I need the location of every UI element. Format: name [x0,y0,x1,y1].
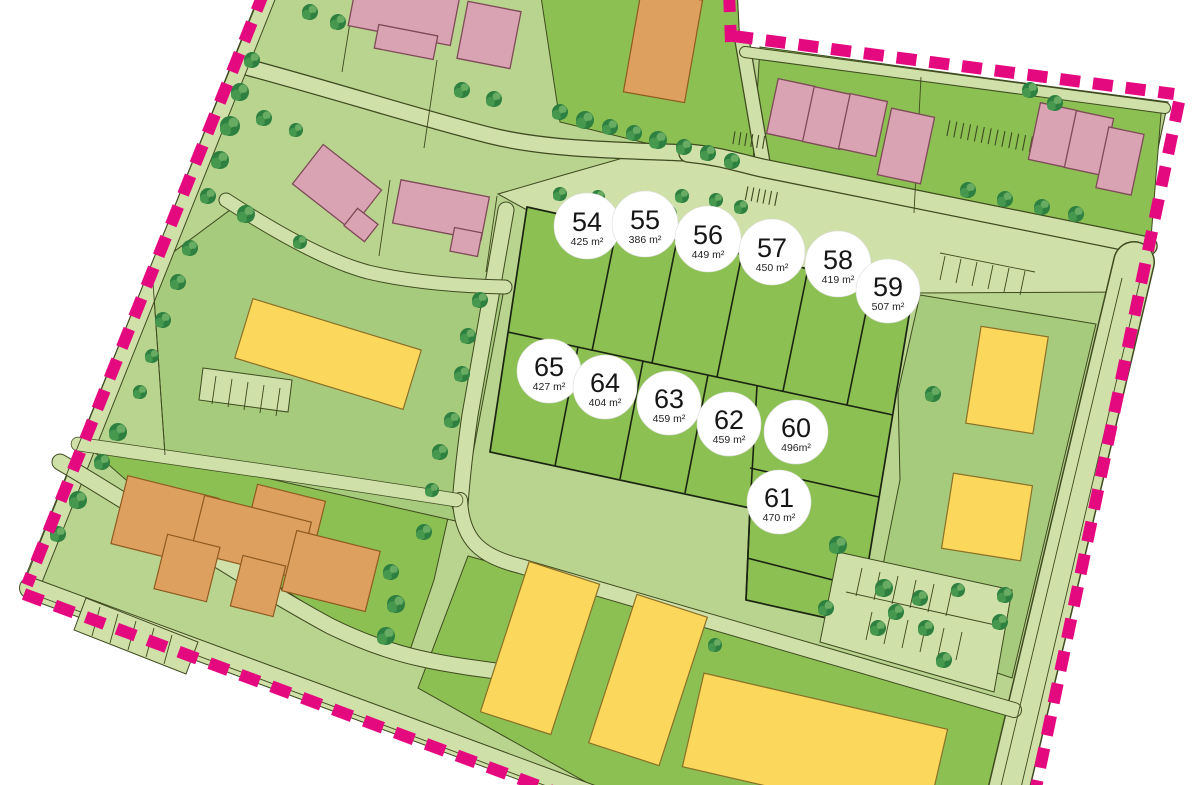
tree-icon [200,188,216,204]
tree-icon [460,328,476,344]
tree-icon [145,349,159,363]
tree-icon [925,386,941,402]
lot-badge-57[interactable]: 57 450 m² [739,219,805,285]
tree-icon [256,110,272,126]
lot-area: 450 m² [756,262,789,274]
lot-badge-61[interactable]: 61 470 m² [747,470,811,534]
tree-icon [330,14,346,30]
tree-icon [416,524,432,540]
lot-badge-63[interactable]: 63 459 m² [637,371,701,435]
lot-area: 496m² [781,442,811,454]
lot-number: 57 [757,233,787,263]
tree-icon [960,182,976,198]
tree-icon [425,483,439,497]
tree-icon [870,620,886,636]
tree-icon [94,454,110,470]
lot-number: 58 [823,245,853,275]
lot-badge-60[interactable]: 60 496m² [764,400,828,464]
tree-icon [676,139,692,155]
lot-area: 459 m² [653,413,686,425]
lot-badge-59[interactable]: 59 507 m² [856,259,920,323]
lot-number: 55 [630,205,660,235]
tree-icon [951,583,965,597]
tree-icon [472,292,488,308]
lot-badge-55[interactable]: 55 386 m² [612,191,678,257]
lot-badge-65[interactable]: 65 427 m² [517,339,581,403]
tree-icon [1034,199,1050,215]
tree-icon [432,444,448,460]
tree-icon [387,595,405,613]
lot-badge-62[interactable]: 62 459 m² [697,392,761,456]
lot-badge-56[interactable]: 56 449 m² [675,206,741,272]
tree-icon [649,131,667,149]
tree-icon [454,82,470,98]
tree-icon [675,189,689,203]
tree-icon [553,187,567,201]
tree-icon [182,240,198,256]
tree-icon [220,116,240,136]
lot-badge-54[interactable]: 54 425 m² [554,193,620,259]
tree-icon [155,312,171,328]
tree-icon [936,652,952,668]
tree-icon [829,536,847,554]
tree-icon [708,638,722,652]
tree-icon [231,83,249,101]
lot-number: 60 [781,413,811,443]
tree-icon [454,366,470,382]
lot-area: 427 m² [533,381,566,393]
tree-icon [170,274,186,290]
lot-number: 54 [572,207,602,237]
lot-area: 404 m² [589,397,622,409]
tree-icon [709,193,723,207]
tree-icon [244,52,260,68]
lot-area: 425 m² [571,236,604,248]
lot-number: 56 [693,220,723,250]
tree-icon [912,590,928,606]
lot-area: 449 m² [692,249,725,261]
lot-area: 459 m² [713,434,746,446]
tree-icon [992,614,1008,630]
tree-icon [576,111,594,129]
tree-icon [724,153,740,169]
tree-icon [602,119,618,135]
lot-number: 65 [534,352,564,382]
tree-icon [293,235,307,249]
lot-number: 61 [764,483,794,513]
lot-area: 386 m² [629,234,662,246]
tree-icon [69,491,87,509]
tree-icon [888,604,904,620]
tree-icon [626,125,642,141]
lot-area: 507 m² [872,301,905,313]
tree-icon [383,564,399,580]
tree-icon [875,579,893,597]
tree-icon [237,205,255,223]
tree-icon [734,200,748,214]
tree-icon [997,587,1013,603]
site-plan-page: 54 425 m² 55 386 m² 56 449 m² 57 450 m² … [0,0,1200,785]
lot-area: 470 m² [763,512,796,524]
tree-icon [444,412,460,428]
lot-badge-64[interactable]: 64 404 m² [573,355,637,419]
tree-icon [377,627,395,645]
tree-icon [818,600,834,616]
tree-icon [486,91,502,107]
tree-icon [1047,95,1063,111]
tree-icon [211,151,229,169]
tree-icon [133,385,147,399]
tree-icon [918,620,934,636]
lot-number: 59 [873,272,903,302]
tree-icon [700,145,716,161]
tree-icon [1022,82,1038,98]
tree-icon [997,191,1013,207]
tree-icon [552,104,568,120]
site-plan-map: 54 425 m² 55 386 m² 56 449 m² 57 450 m² … [0,0,1200,785]
tree-icon [1068,206,1084,222]
lot-number: 62 [714,405,744,435]
tree-icon [302,4,318,20]
lot-number: 64 [590,368,620,398]
lot-area: 419 m² [822,274,855,286]
tree-icon [109,423,127,441]
tree-icon [289,123,303,137]
lot-number: 63 [654,384,684,414]
